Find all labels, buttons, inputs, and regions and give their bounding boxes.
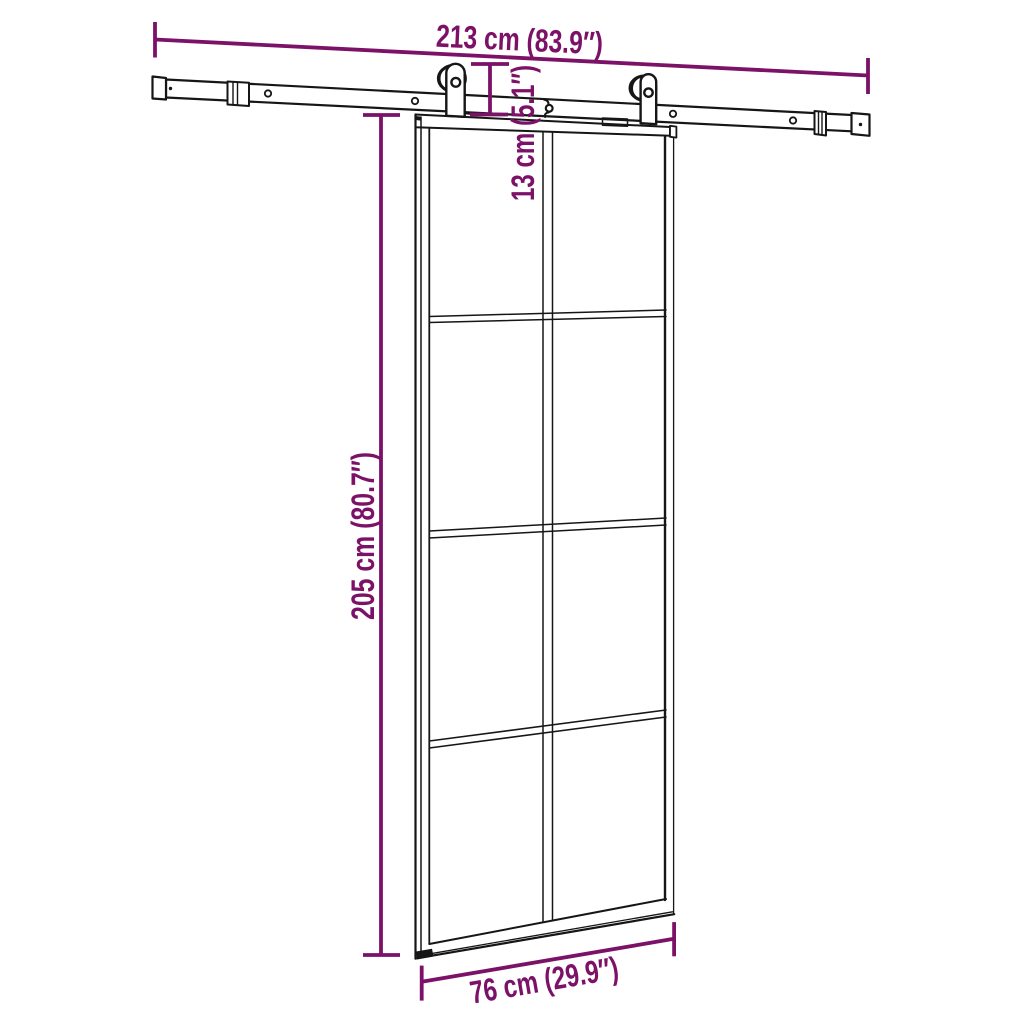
svg-text:76 cm (29.9″): 76 cm (29.9″) xyxy=(467,950,621,1011)
svg-text:205 cm (80.7″): 205 cm (80.7″) xyxy=(345,452,381,620)
svg-text:13 cm (5.1″): 13 cm (5.1″) xyxy=(505,65,541,201)
